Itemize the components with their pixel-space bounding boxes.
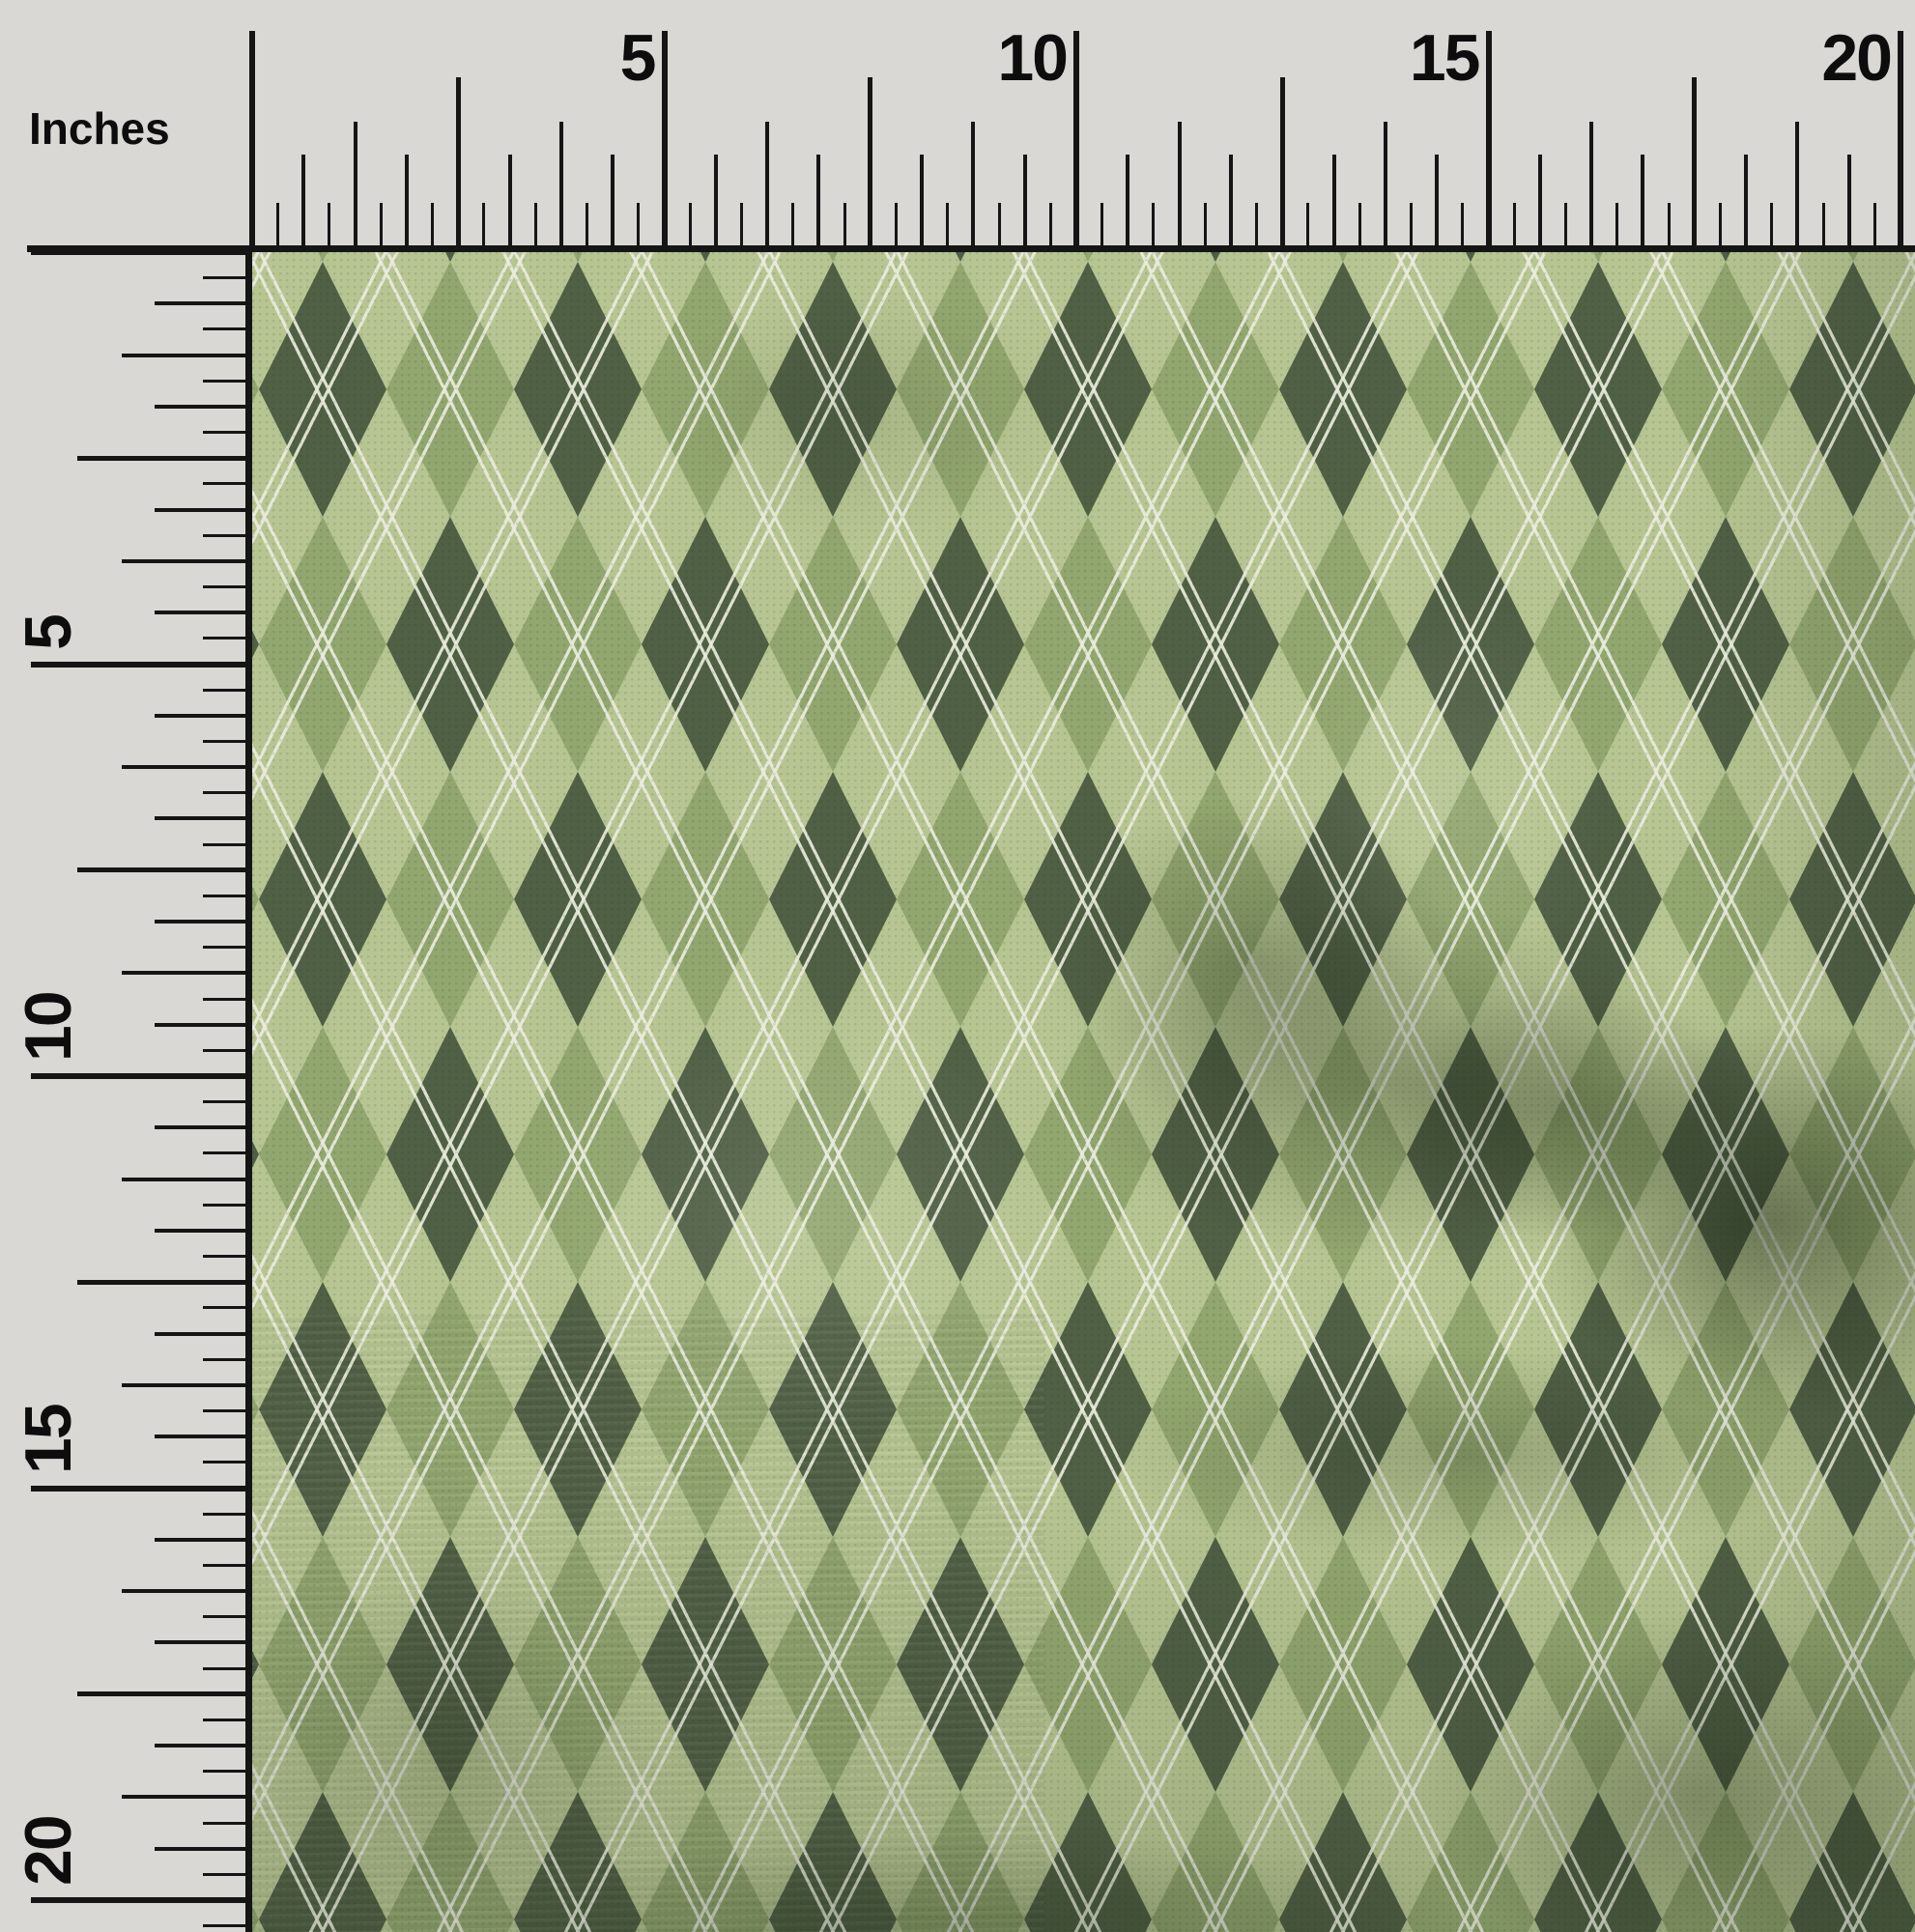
ruler-tick-sixteenth <box>203 1204 251 1207</box>
ruler-tick-eighth <box>405 155 409 251</box>
ruler-tick-major <box>31 1897 251 1903</box>
ruler-tick-sixteenth <box>203 1151 251 1154</box>
ruler-tick-sixteenth <box>203 380 251 383</box>
ruler-tick-sixteenth <box>203 895 251 897</box>
ruler-tick-sixteenth <box>203 689 251 692</box>
ruler-tick-quarter <box>1384 122 1387 251</box>
ruler-tick-sixteenth <box>431 203 434 251</box>
argyle-pattern-svg <box>252 252 1915 1932</box>
ruler-tick-sixteenth <box>203 1822 251 1825</box>
ruler-tick-major <box>31 662 251 668</box>
ruler-tick-sixteenth <box>1049 203 1052 251</box>
ruler-tick-eighth <box>155 301 251 305</box>
ruler-tick-quarter <box>122 1178 251 1181</box>
ruler-tick-eighth <box>155 920 251 923</box>
ruler-tick-sixteenth <box>1873 203 1876 251</box>
ruler-left-label-20: 20 <box>15 1816 81 1886</box>
ruler-tick-major <box>1898 31 1903 251</box>
ruler-tick-sixteenth <box>1564 203 1567 251</box>
ruler-tick-eighth <box>155 1023 251 1027</box>
ruler-tick-eighth <box>155 714 251 718</box>
ruler-tick-eighth <box>920 155 924 251</box>
ruler-left-label-10: 10 <box>15 992 81 1062</box>
ruler-tick-sixteenth <box>998 203 1001 251</box>
ruler-tick-sixteenth <box>534 203 537 251</box>
ruler-tick-half <box>77 867 251 872</box>
ruler-tick-eighth <box>508 155 512 251</box>
ruler-tick-eighth <box>155 508 251 512</box>
ruler-tick-sixteenth <box>482 203 485 251</box>
ruler-tick-eighth <box>1641 155 1644 251</box>
ruler-tick-quarter <box>1178 122 1182 251</box>
ruler-tick-eighth <box>155 1332 251 1336</box>
ruler-tick-quarter <box>1589 122 1593 251</box>
ruler-tick-sixteenth <box>1461 203 1464 251</box>
ruler-tick-sixteenth <box>637 203 640 251</box>
ruler-tick-sixteenth <box>203 1513 251 1516</box>
ruler-tick-sixteenth <box>1513 203 1516 251</box>
photo-stage: Inches 5101520 5101520 <box>0 0 1915 1932</box>
ruler-tick-sixteenth <box>203 1306 251 1309</box>
ruler-tick-sixteenth <box>203 1461 251 1463</box>
ruler-tick-eighth <box>155 816 251 820</box>
ruler-tick-eighth <box>155 611 251 614</box>
ruler-tick-sixteenth <box>203 946 251 949</box>
ruler-tick-sixteenth <box>203 1770 251 1773</box>
ruler-tick-major <box>662 31 668 251</box>
ruler-tick-sixteenth <box>843 203 846 251</box>
ruler-tick-eighth <box>611 155 615 251</box>
ruler-tick-sixteenth <box>203 998 251 1001</box>
ruler-tick-sixteenth <box>1822 203 1825 251</box>
ruler-tick-quarter <box>122 559 251 563</box>
ruler-tick-sixteenth <box>203 327 251 330</box>
ruler-tick-eighth <box>714 155 718 251</box>
ruler-tick-sixteenth <box>203 1358 251 1361</box>
ruler-tick-sixteenth <box>1204 203 1207 251</box>
ruler-tick-sixteenth <box>203 740 251 743</box>
ruler-tick-half <box>77 456 251 461</box>
ruler-unit-label: Inches <box>29 102 170 155</box>
ruler-tick-sixteenth <box>203 1100 251 1103</box>
ruler-tick-half <box>1280 77 1285 251</box>
ruler-tick-eighth <box>155 1435 251 1438</box>
ruler-tick-sixteenth <box>276 203 279 251</box>
ruler-tick-sixteenth <box>1770 203 1773 251</box>
ruler-tick-half <box>1692 77 1697 251</box>
ruler-tick-half <box>456 77 461 251</box>
ruler-left-label-5: 5 <box>15 615 81 650</box>
ruler-tick-sixteenth <box>203 1409 251 1412</box>
ruler-tick-eighth <box>155 1125 251 1129</box>
ruler-tick-sixteenth <box>946 203 949 251</box>
ruler-tick-quarter <box>765 122 769 251</box>
ruler-tick-eighth <box>1126 155 1129 251</box>
ruler-tick-major <box>249 31 255 251</box>
ruler-tick-quarter <box>122 1589 251 1593</box>
ruler-tick-sixteenth <box>1668 203 1671 251</box>
ruler-tick-sixteenth <box>203 791 251 794</box>
ruler-tick-eighth <box>155 405 251 409</box>
ruler-tick-eighth <box>155 1640 251 1644</box>
ruler-tick-sixteenth <box>203 843 251 846</box>
ruler-top-label-20: 20 <box>1821 25 1891 91</box>
ruler-tick-sixteenth <box>1410 203 1413 251</box>
ruler-tick-quarter <box>122 354 251 357</box>
ruler-tick-sixteenth <box>203 1049 251 1052</box>
ruler-tick-sixteenth <box>203 1719 251 1721</box>
ruler-tick-eighth <box>155 1847 251 1851</box>
ruler-tick-major <box>31 1073 251 1079</box>
ruler-tick-quarter <box>122 971 251 975</box>
ruler-tick-sixteenth <box>328 203 330 251</box>
ruler-tick-quarter <box>122 1383 251 1387</box>
ruler-tick-eighth <box>816 155 820 251</box>
ruler-tick-sixteenth <box>203 1667 251 1670</box>
ruler-tick-sixteenth <box>1152 203 1155 251</box>
ruler-tick-sixteenth <box>1306 203 1309 251</box>
ruler-left-label-15: 15 <box>15 1405 81 1474</box>
ruler-tick-eighth <box>1538 155 1542 251</box>
ruler-tick-sixteenth <box>203 1873 251 1876</box>
ruler-tick-sixteenth <box>1255 203 1258 251</box>
ruler-tick-sixteenth <box>1358 203 1361 251</box>
ruler-tick-sixteenth <box>895 203 898 251</box>
ruler-tick-major <box>31 1486 251 1492</box>
ruler-tick-sixteenth <box>1615 203 1618 251</box>
ruler-top-label-10: 10 <box>997 25 1067 91</box>
ruler-tick-quarter <box>122 1795 251 1799</box>
ruler-tick-eighth <box>1229 155 1233 251</box>
ruler-tick-sixteenth <box>740 203 743 251</box>
ruler-tick-eighth <box>301 155 305 251</box>
ruler-tick-sixteenth <box>203 431 251 434</box>
ruler-tick-sixteenth <box>203 637 251 639</box>
ruler-tick-quarter <box>1795 122 1799 251</box>
ruler-tick-eighth <box>1744 155 1748 251</box>
ruler-top-label-15: 15 <box>1410 25 1479 91</box>
ruler-tick-half <box>77 1280 251 1285</box>
ruler-tick-sixteenth <box>203 1924 251 1927</box>
fabric-swatch <box>252 252 1915 1932</box>
ruler-tick-sixteenth <box>689 203 692 251</box>
ruler-tick-sixteenth <box>380 203 383 251</box>
ruler-tick-quarter <box>971 122 975 251</box>
ruler-tick-major <box>1073 31 1079 251</box>
ruler-tick-eighth <box>1332 155 1336 251</box>
ruler-tick-quarter <box>354 122 357 251</box>
ruler-tick-major <box>1486 31 1492 251</box>
ruler-tick-sixteenth <box>203 1615 251 1618</box>
ruler-tick-sixteenth <box>791 203 794 251</box>
ruler-tick-major <box>31 249 251 255</box>
ruler-tick-half <box>868 77 872 251</box>
ruler-tick-eighth <box>155 1538 251 1542</box>
ruler-tick-sixteenth <box>203 1564 251 1567</box>
ruler-tick-sixteenth <box>203 482 251 485</box>
ruler-tick-sixteenth <box>1100 203 1103 251</box>
ruler-top-label-5: 5 <box>620 25 655 91</box>
ruler-tick-quarter <box>559 122 563 251</box>
ruler-tick-quarter <box>122 765 251 769</box>
ruler-tick-eighth <box>1847 155 1851 251</box>
ruler-tick-eighth <box>1023 155 1027 251</box>
ruler-tick-sixteenth <box>586 203 588 251</box>
ruler-left-baseline <box>245 245 252 1932</box>
ruler-tick-sixteenth <box>203 534 251 537</box>
ruler-tick-sixteenth <box>203 585 251 588</box>
ruler-tick-eighth <box>1435 155 1439 251</box>
ruler-tick-sixteenth <box>203 1255 251 1258</box>
ruler-tick-sixteenth <box>203 276 251 279</box>
ruler-tick-eighth <box>155 1229 251 1233</box>
ruler-tick-eighth <box>155 1744 251 1747</box>
ruler-tick-half <box>77 1691 251 1696</box>
ruler-tick-sixteenth <box>1719 203 1722 251</box>
